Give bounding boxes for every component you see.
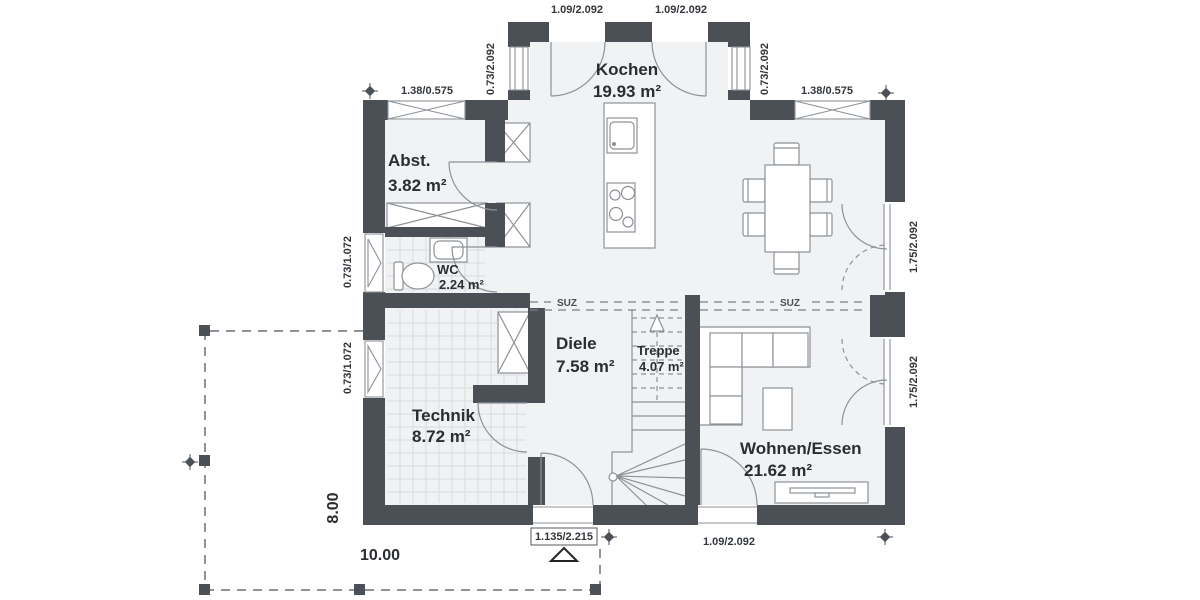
wall-east-pier <box>870 295 905 337</box>
wall-abst-east-upper <box>485 120 505 162</box>
dim-top-door-left: 1.09/2.092 <box>551 4 603 16</box>
burner-1 <box>610 190 620 200</box>
dim-north-window-right: 1.38/0.575 <box>801 85 853 97</box>
room-label-abst: Abst. <box>388 151 431 170</box>
post-nw <box>199 325 210 336</box>
room-area-kochen: 19.93 m² <box>593 82 661 101</box>
dining-chair-left-1 <box>743 179 765 202</box>
dining-table <box>765 165 810 252</box>
bay-window-left <box>510 47 528 90</box>
wall-technik-stub <box>473 385 528 403</box>
wall-stair-east <box>685 295 700 505</box>
room-label-wc: WC <box>437 262 459 277</box>
sofa-seat-4 <box>710 367 742 396</box>
burner-2 <box>622 187 635 200</box>
bay-window-right <box>732 47 750 90</box>
sofa-seat-5 <box>710 396 742 424</box>
dining-chair-bottom <box>774 252 799 274</box>
room-area-abst: 3.82 m² <box>388 176 447 195</box>
sofa-seat-3 <box>773 333 808 367</box>
tv-screen <box>790 488 855 493</box>
wall-south <box>363 505 905 525</box>
room-label-wohnen: Wohnen/Essen <box>740 439 862 458</box>
opening-top-door-right <box>652 22 708 42</box>
dim-top-door-right: 1.09/2.092 <box>655 4 707 16</box>
suz-label-left: SUZ <box>557 298 577 309</box>
post-sw <box>199 584 210 595</box>
burner-4 <box>623 217 633 227</box>
post-s2 <box>590 584 601 595</box>
dim-west-window-wc: 0.73/1.072 <box>342 236 354 288</box>
room-label-technik: Technik <box>412 406 476 425</box>
wc-sink-basin <box>434 241 463 259</box>
marker-nw <box>362 83 378 99</box>
marker-ne <box>878 85 894 101</box>
dim-bay-window-left: 0.73/2.092 <box>485 43 497 95</box>
dim-east-door-lower: 1.75/2.092 <box>908 356 920 408</box>
dim-south-door: 1.09/2.092 <box>703 536 755 548</box>
dim-building-depth: 8.00 <box>325 492 342 523</box>
dining-chair-top <box>774 143 799 165</box>
dining-chair-left-2 <box>743 213 765 236</box>
wall-wc-south <box>363 293 530 308</box>
wall-diele-west-lower <box>528 457 545 505</box>
opening-south-door <box>698 505 757 525</box>
dim-east-door-upper: 1.75/2.092 <box>908 221 920 273</box>
room-label-diele: Diele <box>556 334 597 353</box>
dining-chair-right-2 <box>810 213 832 236</box>
room-area-treppe: 4.07 m² <box>639 359 684 374</box>
room-area-wc: 2.24 m² <box>439 277 484 292</box>
room-area-technik: 8.72 m² <box>412 427 471 446</box>
marker-entry <box>601 529 617 545</box>
opening-entry-door <box>533 505 593 525</box>
floor-plan-svg: SUZ SUZ Kochen 19.93 m² Abst. 3.82 m² WC… <box>0 0 1200 600</box>
dining-chair-right-1 <box>810 179 832 202</box>
room-label-kochen: Kochen <box>596 60 658 79</box>
wall-west <box>363 100 385 525</box>
wall-abst-wc-divider <box>385 227 505 237</box>
wall-bay-top <box>508 22 750 42</box>
dim-entry-door: 1.135/2.215 <box>535 531 593 543</box>
marker-se <box>877 529 893 545</box>
coffee-table <box>763 388 792 430</box>
sofa-seat-1 <box>710 333 742 367</box>
floor-plan-page: SUZ SUZ Kochen 19.93 m² Abst. 3.82 m² WC… <box>0 0 1200 600</box>
toilet-bowl <box>402 263 434 289</box>
opening-east-door-lower <box>885 337 905 427</box>
dim-north-window-left: 1.38/0.575 <box>401 85 453 97</box>
burner-3 <box>610 208 623 221</box>
dim-bay-window-right: 0.73/2.092 <box>759 43 771 95</box>
entrance-triangle <box>551 548 577 561</box>
tv-stand <box>815 493 829 497</box>
sofa-seat-2 <box>742 333 773 367</box>
wall-diele-west-upper <box>528 308 545 403</box>
room-area-diele: 7.58 m² <box>556 357 615 376</box>
room-label-treppe: Treppe <box>637 343 680 358</box>
dim-west-window-technik: 0.73/1.072 <box>342 342 354 394</box>
post-w <box>199 455 210 466</box>
stair-newel <box>609 473 617 481</box>
suz-label-right: SUZ <box>780 298 800 309</box>
opening-east-door-upper <box>885 202 905 292</box>
room-area-wohnen: 21.62 m² <box>744 461 812 480</box>
opening-top-door-left <box>549 22 605 42</box>
kitchen-sink-drain <box>613 143 616 146</box>
marker-west <box>182 454 198 470</box>
dim-building-width: 10.00 <box>360 547 400 564</box>
post-s1 <box>354 584 365 595</box>
